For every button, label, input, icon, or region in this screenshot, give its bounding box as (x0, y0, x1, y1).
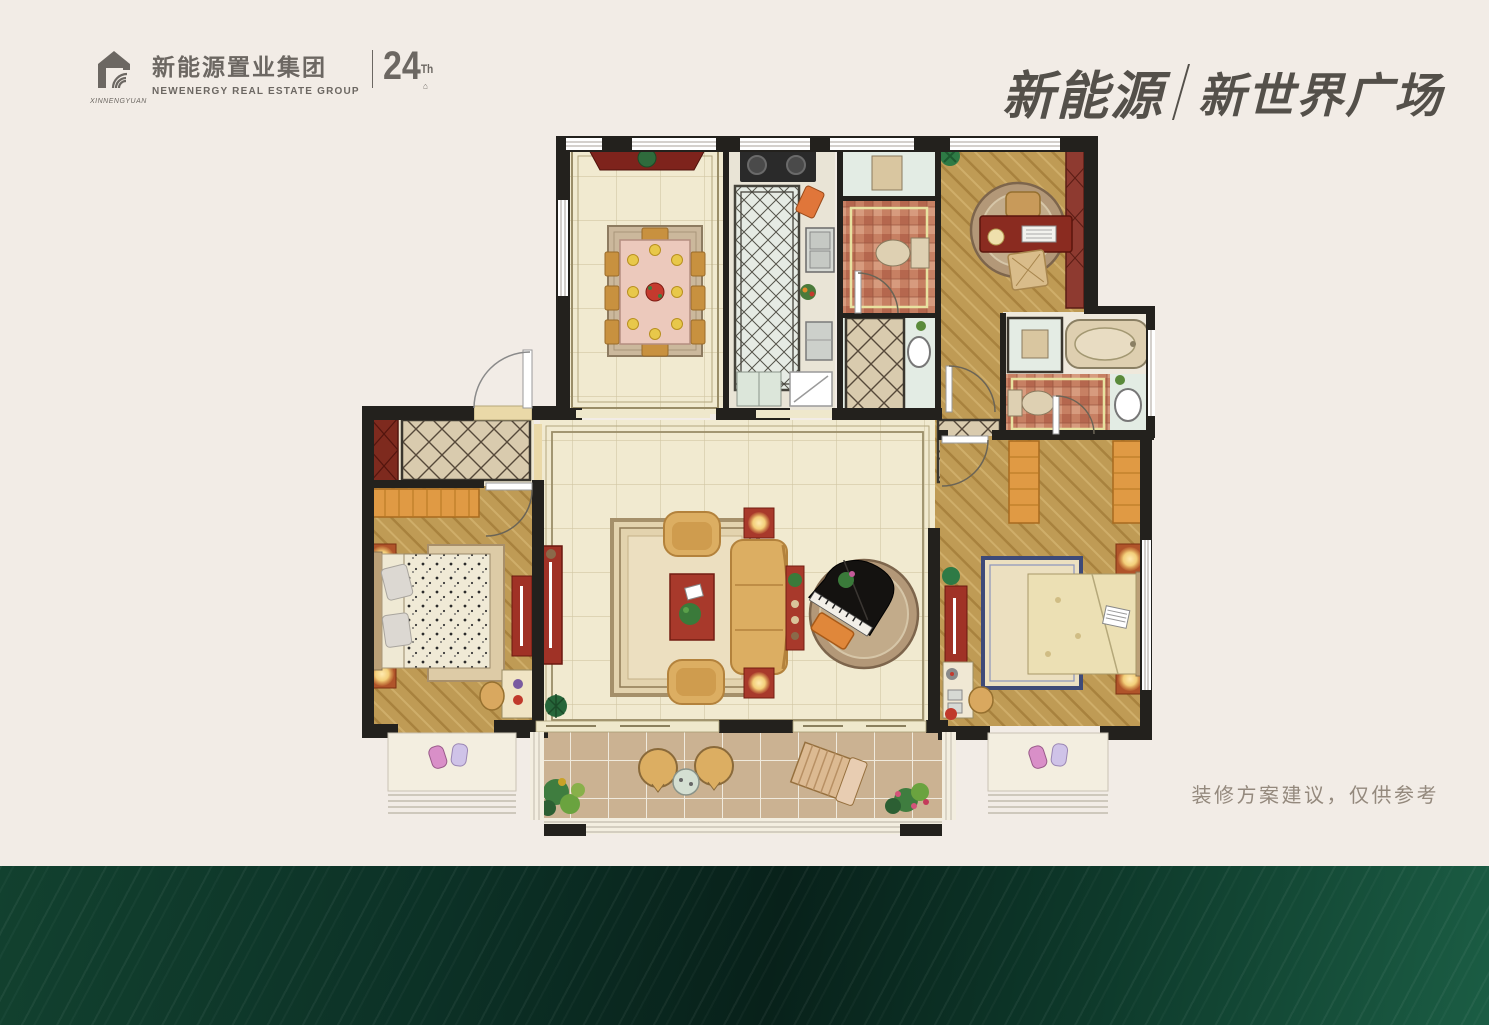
toilet-tank (1008, 390, 1022, 416)
flower-centerpiece (646, 283, 664, 301)
wash-basin (908, 337, 930, 367)
project-name-secondary: 新世界广场 (1198, 57, 1443, 126)
brand-name-cn: 新能源置业集团 (152, 48, 360, 82)
wardrobe (1113, 441, 1143, 523)
toilet (876, 240, 910, 266)
shower-stall (846, 318, 904, 410)
mini-house-icon: ⌂ (423, 82, 428, 90)
logo-text-block: 新能源置业集团 NEWENERGY REAL ESTATE GROUP (152, 48, 360, 97)
balcony-rail-left (530, 732, 544, 820)
anniversary-badge: 24Th⌂ (383, 48, 438, 84)
wash-basin (1115, 389, 1141, 421)
bath-a-door-leaf (855, 271, 861, 313)
logo-pinyin: XINNENGYUAN (90, 98, 142, 105)
side-table (502, 670, 534, 718)
slipper (450, 743, 468, 767)
plant (679, 603, 701, 625)
slipper (1050, 743, 1068, 767)
disclaimer-text: 装修方案建议，仅供参考 (1192, 779, 1440, 808)
desk-chair (1006, 192, 1040, 218)
vegetable-basket (800, 284, 816, 300)
dining-opening (576, 410, 710, 418)
sofa (731, 540, 787, 674)
bedroom-side-window (1142, 540, 1151, 690)
shower-mat (1022, 330, 1048, 358)
kitchen-opening (756, 410, 832, 418)
balcony-floor (544, 732, 942, 820)
logo-house-block: XINNENGYUAN (90, 48, 142, 105)
left-bedroom-door-leaf (486, 483, 532, 490)
fridge (806, 322, 832, 360)
foyer-rug (402, 420, 530, 480)
balcony-table (673, 769, 699, 795)
foyer-threshold (534, 424, 542, 480)
pillow (382, 612, 412, 647)
project-title: 新能源 新世界广场 (1002, 54, 1443, 129)
info-banner: 10 # 户 型 建筑 面积 约 174.32m2 3室2厅2卫 (0, 866, 1489, 1025)
poster-page: XINNENGYUAN 新能源置业集团 NEWENERGY REAL ESTAT… (0, 0, 1489, 1025)
entrance-door-leaf (523, 350, 532, 408)
balcony-rail-right (942, 732, 956, 820)
master-bath-door-leaf (1053, 396, 1059, 434)
company-logo: XINNENGYUAN 新能源置业集团 NEWENERGY REAL ESTAT… (90, 48, 447, 105)
kitchen-island (735, 186, 799, 390)
brand-name-en: NEWENERGY REAL ESTATE GROUP (152, 86, 360, 97)
toilet (1022, 391, 1054, 415)
plant (942, 567, 960, 585)
title-slash-divider (1172, 64, 1190, 120)
plant (916, 321, 926, 331)
study-door-leaf (946, 366, 952, 412)
right-bedroom-door-leaf (942, 436, 988, 443)
entrance-door-swing (474, 352, 530, 408)
shoe-cabinet (370, 418, 398, 482)
logo-divider (372, 50, 373, 88)
lamp (748, 672, 770, 694)
stool (969, 687, 993, 713)
project-name-primary: 新能源 (1002, 54, 1164, 129)
lamp (748, 512, 770, 534)
ottoman (1008, 250, 1049, 291)
dining-side-window (558, 200, 568, 296)
wardrobe (371, 489, 479, 517)
toilet-tank (911, 238, 929, 268)
bay-window-left (388, 733, 516, 813)
bed-blanket (404, 554, 490, 668)
flower (945, 708, 957, 720)
desk-lamp (988, 229, 1004, 245)
stool (480, 682, 504, 710)
lamp (1118, 547, 1142, 571)
bay-window-right (988, 733, 1108, 813)
floorplan-illustration (355, 128, 1155, 840)
shower-mat (872, 156, 902, 190)
balcony-chair (639, 749, 677, 787)
plant (1115, 375, 1125, 385)
balcony-chair (695, 747, 733, 785)
wardrobe (1009, 441, 1039, 523)
house-icon (93, 48, 139, 92)
